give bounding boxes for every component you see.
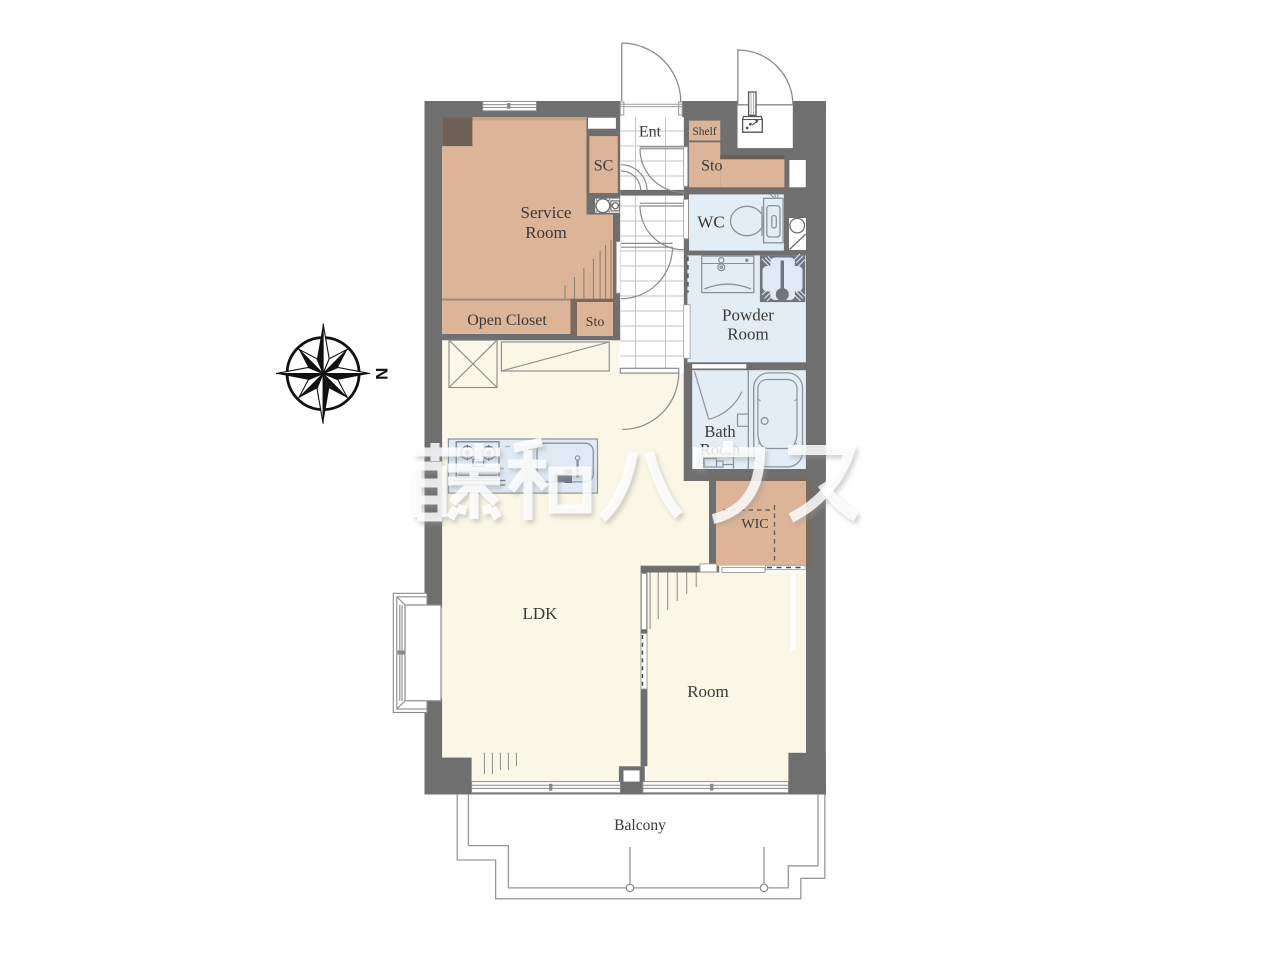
svg-text:Sto: Sto	[586, 315, 605, 330]
svg-text:WIC: WIC	[741, 517, 768, 532]
svg-text:Service: Service	[521, 203, 572, 222]
svg-text:Powder: Powder	[722, 306, 774, 325]
svg-text:Balcony: Balcony	[614, 817, 666, 834]
svg-text:SC: SC	[594, 158, 614, 175]
svg-text:Shelf: Shelf	[692, 126, 716, 138]
svg-text:LDK: LDK	[523, 604, 559, 623]
svg-text:Open Closet: Open Closet	[467, 312, 547, 329]
svg-text:Ent: Ent	[639, 124, 662, 141]
svg-text:Room: Room	[525, 223, 567, 242]
svg-text:Room: Room	[687, 682, 729, 701]
svg-text:Room: Room	[727, 325, 769, 344]
svg-text:N: N	[372, 368, 391, 380]
svg-text:Bath: Bath	[704, 422, 736, 441]
svg-text:WC: WC	[697, 213, 724, 232]
svg-text:Sto: Sto	[701, 158, 722, 175]
